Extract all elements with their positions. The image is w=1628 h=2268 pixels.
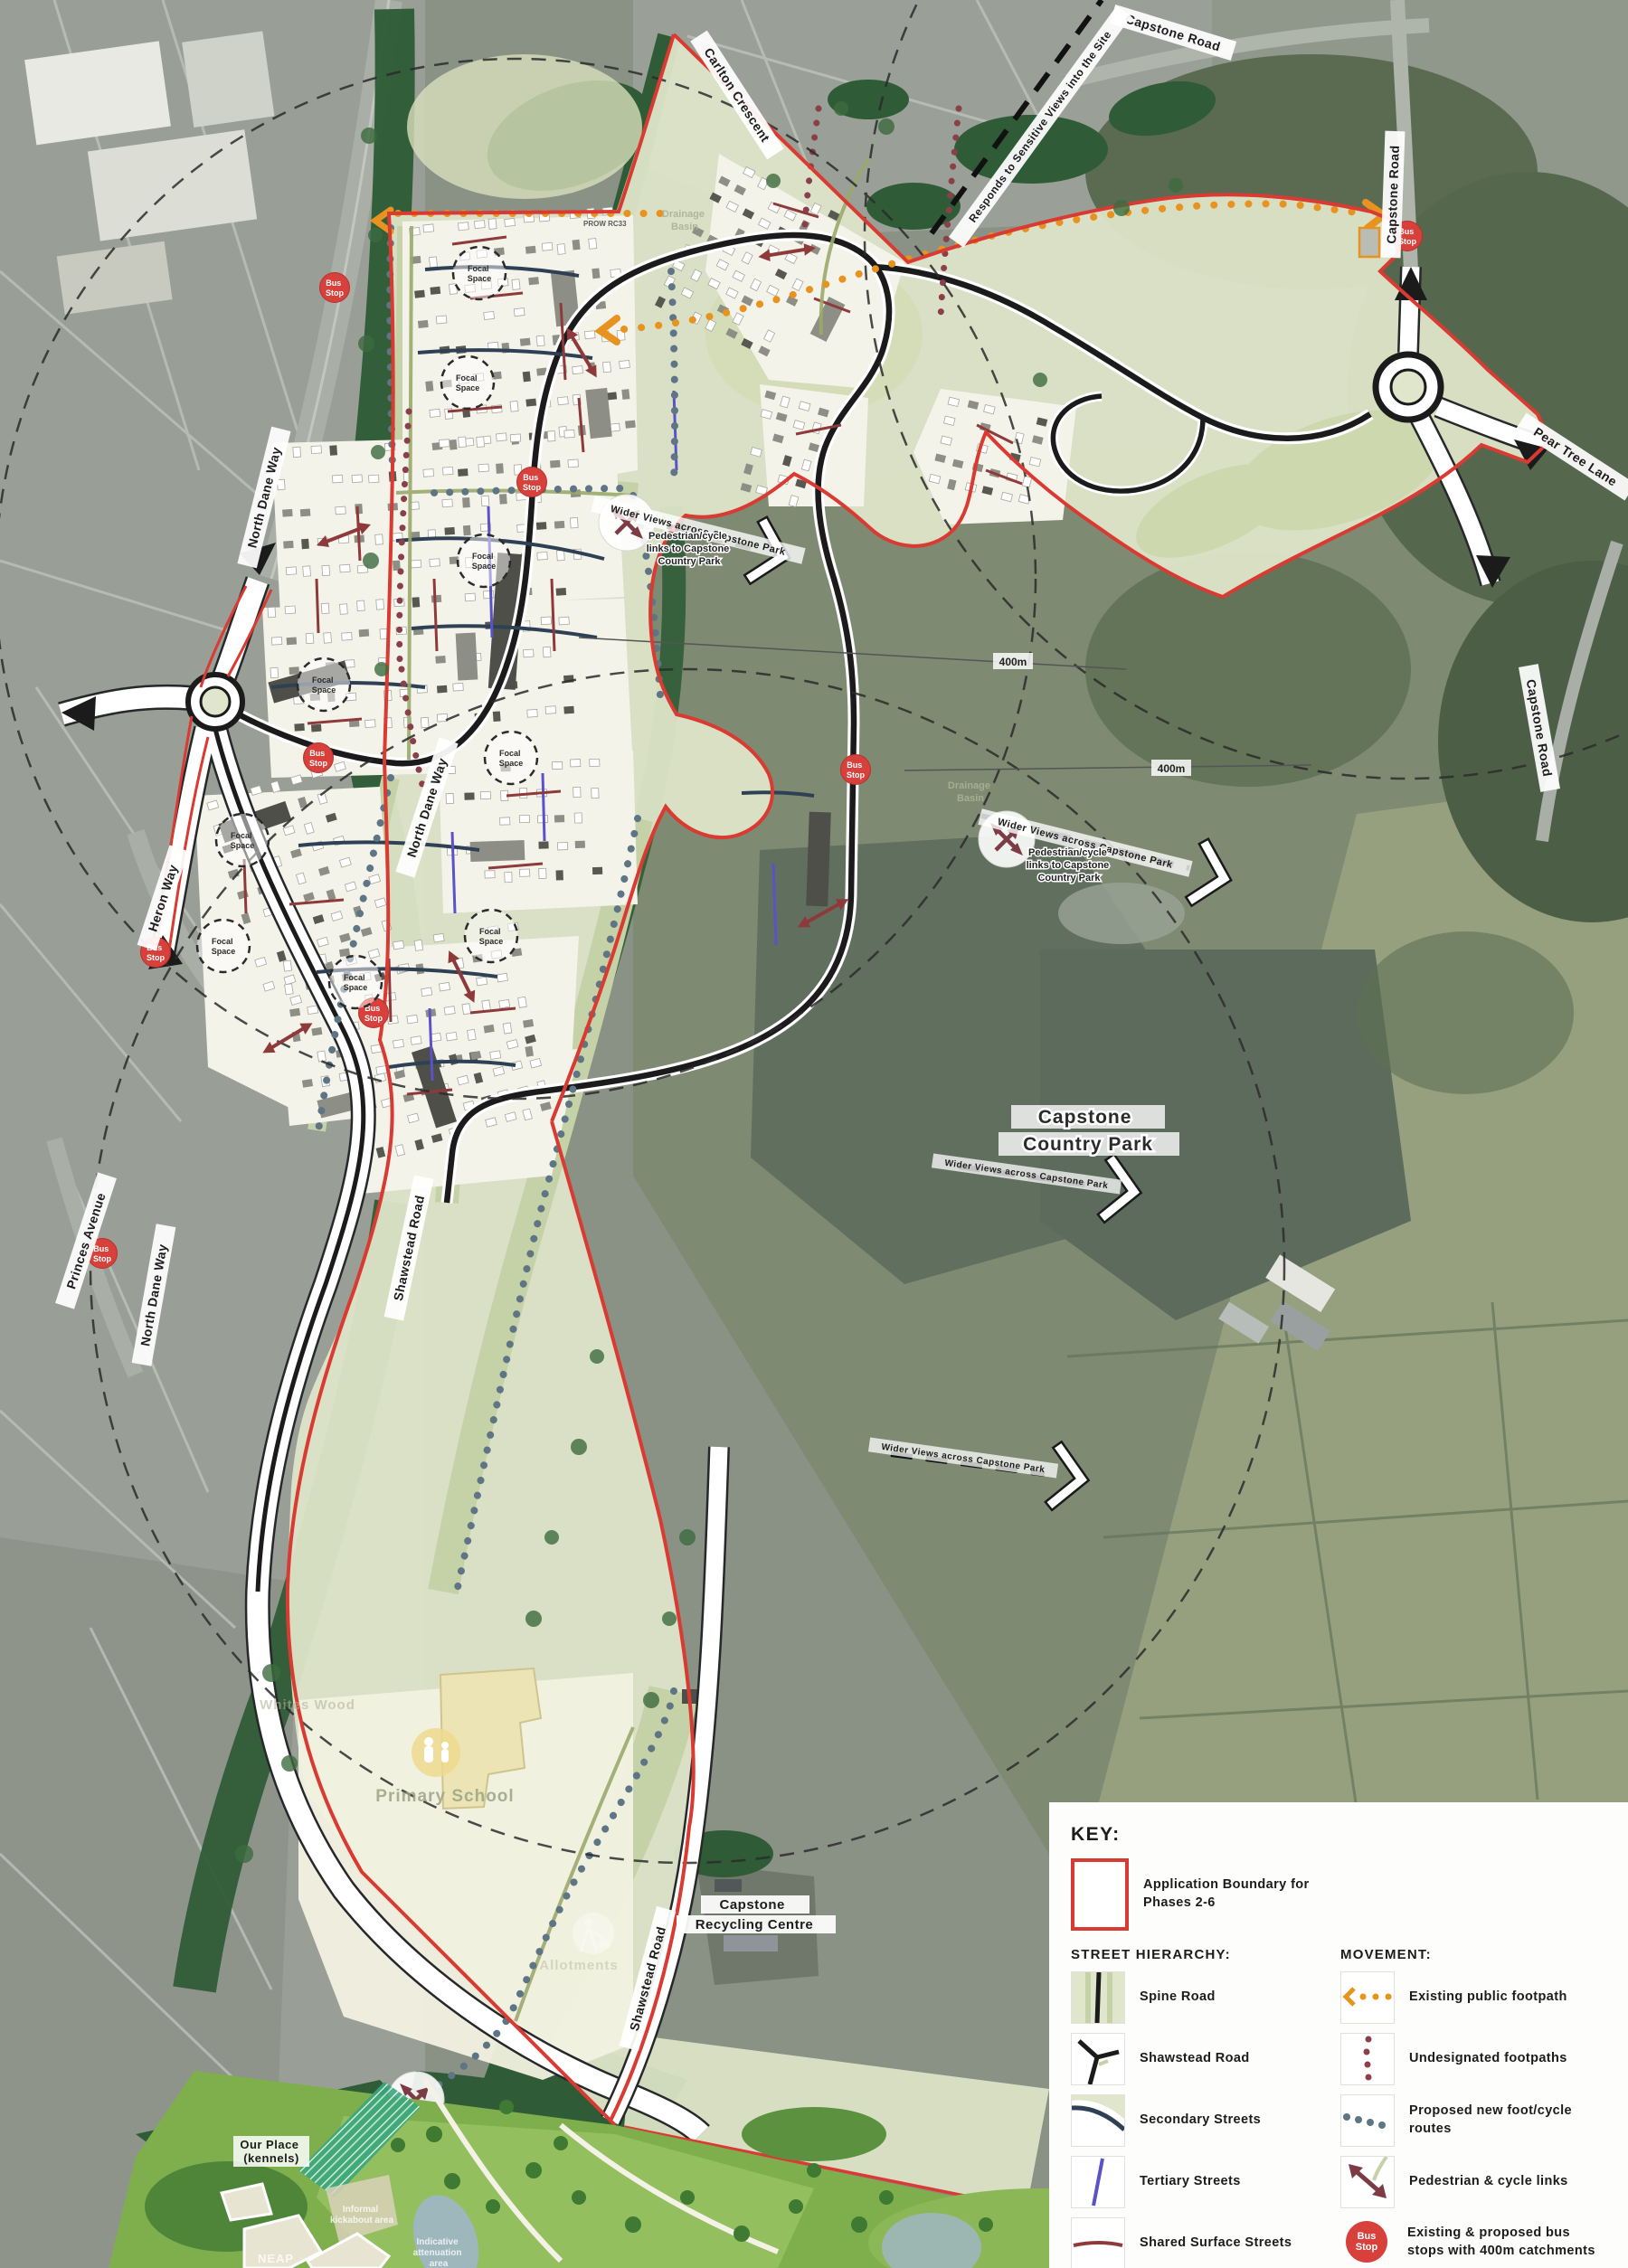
label-400m-1: 400m (993, 653, 1033, 669)
secondary-streets-swatch-icon (1071, 2094, 1125, 2147)
school-icon (412, 1728, 460, 1777)
focal-space-icon (441, 356, 494, 409)
legend-item-boundary: Application Boundary for Phases 2-6 (1071, 1858, 1610, 1931)
label-whites-wood: Whites Wood (260, 1697, 355, 1713)
label-primary-school: Primary School (375, 1787, 514, 1806)
roundabout-west (188, 675, 242, 729)
legend-item-spine-road: Spine Road (1071, 1971, 1340, 2024)
svg-text:400m: 400m (1158, 762, 1186, 775)
ped-cycle-links-swatch-icon (1340, 2156, 1395, 2208)
label-neap: NEAP (258, 2252, 294, 2265)
bus-stop-swatch-icon: Bus Stop (1340, 2217, 1393, 2268)
svg-text:400m: 400m (999, 656, 1027, 668)
boundary-swatch-icon (1071, 1858, 1129, 1931)
legend-item-proposed-routes: Proposed new foot/cycle routes (1340, 2094, 1610, 2147)
focal-space-icon (298, 658, 350, 711)
legend-item-shawstead-road: Shawstead Road (1071, 2033, 1340, 2085)
masterplan-page: Bus Stop Focal Space (0, 0, 1628, 2268)
legend-panel: KEY: Application Boundary for Phases 2-6… (1049, 1802, 1628, 2268)
shared-surface-swatch-icon (1071, 2217, 1125, 2268)
focal-space-icon (465, 910, 517, 962)
svg-text:Our Place (kennels): Our Place (kennels) (240, 2138, 302, 2165)
focal-space-icon (329, 956, 382, 1008)
legend-street-hierarchy: STREET HIERARCHY: Spine Road Shawstead R (1071, 1931, 1340, 2268)
proposed-routes-swatch-icon (1340, 2094, 1395, 2147)
label-allotments: Allotments (539, 1958, 619, 1973)
bus-stop-icon (841, 755, 871, 785)
legend-title: KEY: (1071, 1824, 1610, 1846)
bus-stop-icon (304, 743, 334, 773)
legend-item-ped-cycle-links: Pedestrian & cycle links (1340, 2156, 1610, 2208)
movement-title: MOVEMENT: (1340, 1947, 1610, 1962)
spine-road-swatch-icon (1071, 1971, 1125, 2024)
existing-footpath-swatch-icon (1340, 1971, 1395, 2024)
legend-item-undesignated-footpaths: Undesignated footpaths (1340, 2033, 1610, 2085)
legend-item-secondary-streets: Secondary Streets (1071, 2094, 1340, 2147)
legend-item-bus-stops: Bus Stop Existing & proposed bus stops w… (1340, 2217, 1610, 2268)
tertiary-streets-swatch-icon (1071, 2156, 1125, 2208)
bus-stop-icon (320, 273, 350, 303)
label-400m-2: 400m (1151, 760, 1191, 776)
focal-space-icon (485, 732, 537, 784)
label-prow: PROW RC33 (583, 220, 627, 228)
legend-item-existing-footpath: Existing public footpath (1340, 1971, 1610, 2024)
label-ped-cycle-1: Pedestrian/cycle links to Capstone Count… (647, 531, 733, 567)
focal-space-icon (458, 534, 510, 587)
svg-text:Pedestrian/cycle links: Pedestrian/cycle links to Capstone Count… (1027, 847, 1112, 884)
focal-space-icon (216, 814, 269, 866)
label-ped-cycle-2: Pedestrian/cycle links to Capstone Count… (1027, 847, 1112, 884)
legend-item-shared-surface: Shared Surface Streets (1071, 2217, 1340, 2268)
allotments-icon (573, 1913, 614, 1954)
legend-item-tertiary-streets: Tertiary Streets (1071, 2156, 1340, 2208)
svg-text:Pedestrian/cycle links: Pedestrian/cycle links to Capstone Count… (647, 531, 733, 567)
undesignated-footpaths-swatch-icon (1340, 2033, 1395, 2085)
legend-boundary-label: Application Boundary for Phases 2-6 (1143, 1876, 1310, 1912)
roundabout-east (1376, 354, 1441, 420)
bus-stop-icon (517, 468, 547, 497)
focal-space-icon (197, 920, 250, 972)
label-our-place: Our Place (kennels) (233, 2136, 309, 2167)
street-hierarchy-title: STREET HIERARCHY: (1071, 1947, 1340, 1962)
shawstead-road-swatch-icon (1071, 2033, 1125, 2085)
legend-movement: MOVEMENT: Existing public footpath Undes (1340, 1931, 1610, 2268)
focal-space-icon (453, 247, 506, 299)
